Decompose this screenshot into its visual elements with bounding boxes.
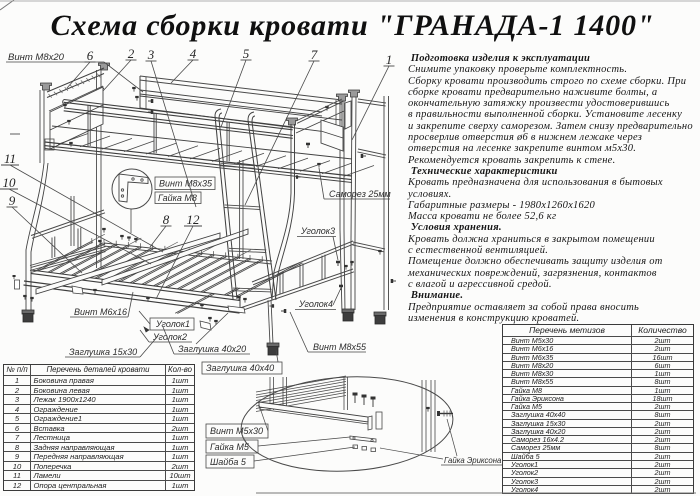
svg-text:9: 9 <box>9 193 16 208</box>
svg-text:Гайка Эриксона: Гайка Эриксона <box>444 456 502 465</box>
svg-text:10: 10 <box>3 175 17 190</box>
svg-text:Гайка М8: Гайка М8 <box>158 193 197 203</box>
svg-text:7: 7 <box>311 47 318 62</box>
svg-text:Саморез 25мм: Саморез 25мм <box>329 189 391 199</box>
svg-text:3: 3 <box>147 47 155 62</box>
svg-text:11: 11 <box>4 151 16 166</box>
svg-text:6: 6 <box>87 48 94 63</box>
svg-text:Винт М5х30: Винт М5х30 <box>210 426 263 436</box>
svg-text:Винт М8х55: Винт М8х55 <box>313 342 367 352</box>
svg-text:8: 8 <box>163 212 170 227</box>
svg-text:Заглушка 40х40: Заглушка 40х40 <box>206 363 274 373</box>
svg-text:Заглушка 40х20: Заглушка 40х20 <box>178 344 246 354</box>
svg-text:12: 12 <box>187 212 201 227</box>
svg-text:Винт М8х35: Винт М8х35 <box>159 179 213 189</box>
svg-text:Заглушка 15х30: Заглушка 15х30 <box>69 347 137 357</box>
svg-text:Уголок4: Уголок4 <box>298 299 333 309</box>
svg-text:2: 2 <box>128 46 135 61</box>
svg-text:4: 4 <box>190 46 197 61</box>
svg-text:1: 1 <box>386 52 393 67</box>
svg-text:Гайка М5: Гайка М5 <box>210 442 250 452</box>
svg-text:Шайба 5: Шайба 5 <box>210 457 247 467</box>
svg-text:5: 5 <box>243 46 250 61</box>
svg-text:Уголок1: Уголок1 <box>155 319 190 329</box>
svg-text:Винт М8х20: Винт М8х20 <box>8 52 65 63</box>
svg-text:Уголок3: Уголок3 <box>300 226 335 236</box>
svg-text:Винт М6х16: Винт М6х16 <box>74 307 127 317</box>
